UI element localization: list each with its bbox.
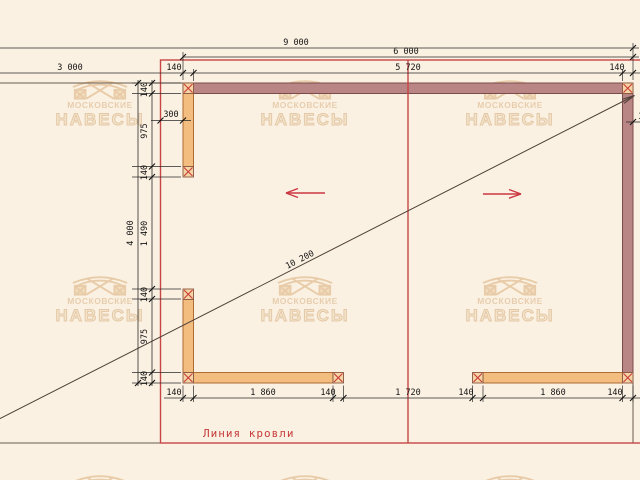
dim-frame-width: 6 000 [393, 47, 419, 57]
dim-bottom-chain-6: 140 [607, 388, 622, 398]
dim-top-chain-2: 140 [609, 63, 624, 73]
dim-left-section: 3 000 [57, 63, 83, 73]
dim-left-chain-4: 140 [140, 287, 150, 302]
dim-left-chain-0: 140 [140, 82, 150, 97]
dim-left-chain-1: 975 [140, 123, 150, 138]
column-x-marker [623, 373, 634, 384]
column-x-marker [183, 373, 194, 384]
roof-line-rect [161, 60, 640, 443]
dim-top-chain-0: 140 [166, 63, 181, 73]
extension-lines [132, 43, 633, 402]
dim-bottom-chain-5: 1 860 [540, 388, 566, 398]
slope-arrow-left-icon [286, 189, 325, 198]
dimension-lines [0, 48, 640, 398]
dim-bottom-chain-4: 140 [458, 388, 473, 398]
plan-drawing: 9 000 6 000 3 000 140 5 720 140 300 300 … [0, 0, 640, 480]
dim-overall-width: 9 000 [283, 38, 309, 48]
dim-height-overall: 4 000 [126, 220, 136, 246]
dimension-ticks [135, 45, 636, 401]
column-x-marker [183, 83, 194, 94]
dim-top-chain-1: 5 720 [395, 63, 421, 73]
dim-bottom-chain-1: 1 860 [250, 388, 276, 398]
column-x-marker [473, 373, 484, 384]
column-x-marker [333, 373, 344, 384]
dim-bottom-chain-2: 140 [320, 388, 335, 398]
column-x-marker [623, 83, 634, 94]
dim-left-chain-2: 140 [140, 165, 150, 180]
column-x-marker [183, 289, 194, 300]
slope-arrow-right-icon [483, 190, 521, 199]
column-x-marker [183, 167, 194, 178]
roof-line-label: Линия кровли [203, 427, 294, 440]
left-post-bottom [183, 299, 194, 373]
dim-offset-left: 300 [163, 110, 178, 120]
left-post-top [183, 94, 194, 167]
bottom-beam-right [483, 373, 623, 384]
dim-bottom-chain-0: 140 [166, 388, 181, 398]
dim-left-chain-3: 1 490 [140, 221, 150, 247]
dim-left-chain-5: 975 [140, 329, 150, 344]
dim-left-chain-6: 140 [140, 371, 150, 386]
dim-bottom-chain-3: 1 720 [395, 388, 421, 398]
roof-outline-rect [0, 83, 633, 443]
roof-plan-canvas: МОСКОВСКИЕ НАВЕСЫ МОСКОВСКИЕ НАВЕСЫ [0, 0, 640, 480]
bottom-beam-left [194, 373, 334, 384]
right-beam [623, 94, 634, 373]
